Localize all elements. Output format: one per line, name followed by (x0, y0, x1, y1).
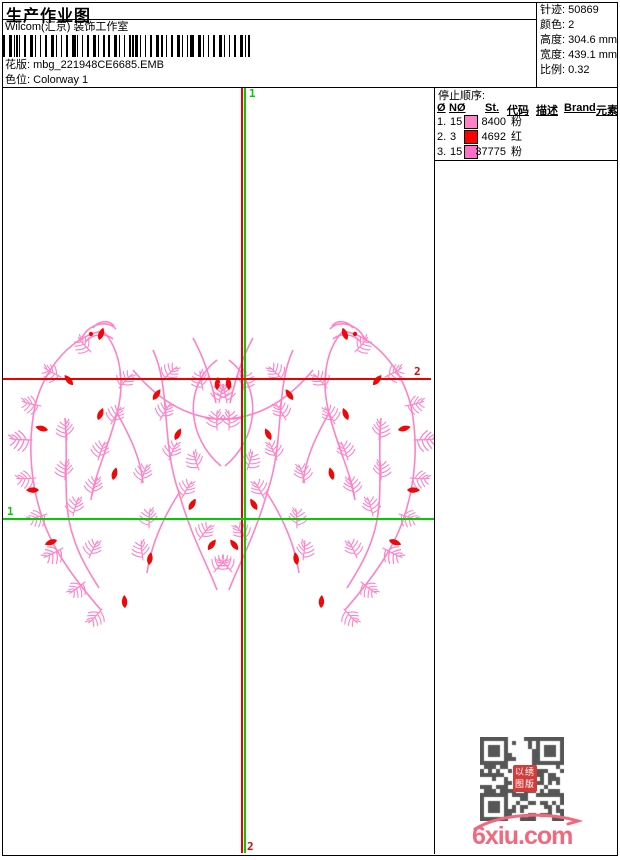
height-row: 高度: 304.6 mm (540, 34, 617, 47)
worksheet-page: 生产作业图 Wilcom(汇京) 装饰工作室 花版: mbg_221948CE6… (0, 0, 620, 860)
title-underline (3, 19, 536, 20)
row2-stitches: 4692 (472, 131, 506, 143)
row3-stitches: 37775 (472, 146, 506, 158)
barcode (3, 35, 250, 57)
row2-needle: 3 (450, 131, 456, 144)
guide-label-red-line: 2 (414, 366, 421, 377)
col-header-stitches: St. (485, 102, 499, 114)
design-file-label: 花版: (5, 59, 30, 71)
col-header-needle: NØ (449, 102, 466, 114)
width-row: 宽度: 439.1 mm (540, 49, 617, 62)
colors-value: 2 (568, 19, 574, 31)
design-file-value: mbg_221948CE6685.EMB (33, 59, 164, 71)
col-header-description: 描述 (536, 102, 558, 118)
guide-label-end: 2 (247, 841, 254, 852)
height-value: 304.6 mm (568, 34, 617, 46)
width-label: 宽度: (540, 49, 565, 61)
stop-table-bottom-rule (434, 160, 617, 161)
info-panel-divider (536, 2, 537, 87)
colorway-value: Colorway 1 (33, 74, 88, 86)
colors-label: 颜色: (540, 19, 565, 31)
guide-horizontal-green (3, 518, 434, 520)
guide-vertical-green (244, 88, 246, 853)
col-header-brand: Brand (564, 102, 596, 114)
guide-vertical-red (241, 88, 243, 853)
scale-row: 比例: 0.32 (540, 64, 590, 77)
row2-seq: 2. (437, 131, 446, 144)
drawing-area-right-border (434, 87, 435, 854)
colors-row: 颜色: 2 (540, 19, 574, 32)
col-header-elements: 元素 (596, 102, 618, 118)
col-header-seq: Ø (437, 102, 446, 114)
stitches-label: 针迹: (540, 4, 565, 16)
height-label: 高度: (540, 34, 565, 46)
watermark-site-text: 6xiu.com (472, 822, 572, 851)
embroidery-design-preview (3, 88, 434, 853)
company-name: Wilcom(汇京) 装饰工作室 (5, 21, 128, 34)
stitches-row: 针迹: 50869 (540, 4, 599, 17)
row1-needle: 15 (450, 116, 462, 129)
row2-code: 红 (511, 131, 522, 144)
design-file-row: 花版: mbg_221948CE6685.EMB (5, 59, 164, 72)
row3-code: 粉 (511, 146, 522, 159)
guide-label-start: 1 (249, 88, 256, 99)
row3-needle: 15 (450, 146, 462, 159)
scale-value: 0.32 (568, 64, 589, 76)
colorway-label: 色位: (5, 74, 30, 86)
scale-label: 比例: (540, 64, 565, 76)
row3-seq: 3. (437, 146, 446, 159)
row1-code: 粉 (511, 116, 522, 129)
row1-stitches: 8400 (472, 116, 506, 128)
guide-label-green-line: 1 (7, 506, 14, 517)
colorway-row: 色位: Colorway 1 (5, 74, 88, 87)
site-watermark: 6xiu.com (472, 810, 587, 855)
row1-seq: 1. (437, 116, 446, 129)
red-seal-stamp: 以绣图版 (513, 765, 537, 792)
stitches-value: 50869 (568, 4, 599, 16)
width-value: 439.1 mm (568, 49, 617, 61)
guide-horizontal-red (3, 378, 431, 380)
